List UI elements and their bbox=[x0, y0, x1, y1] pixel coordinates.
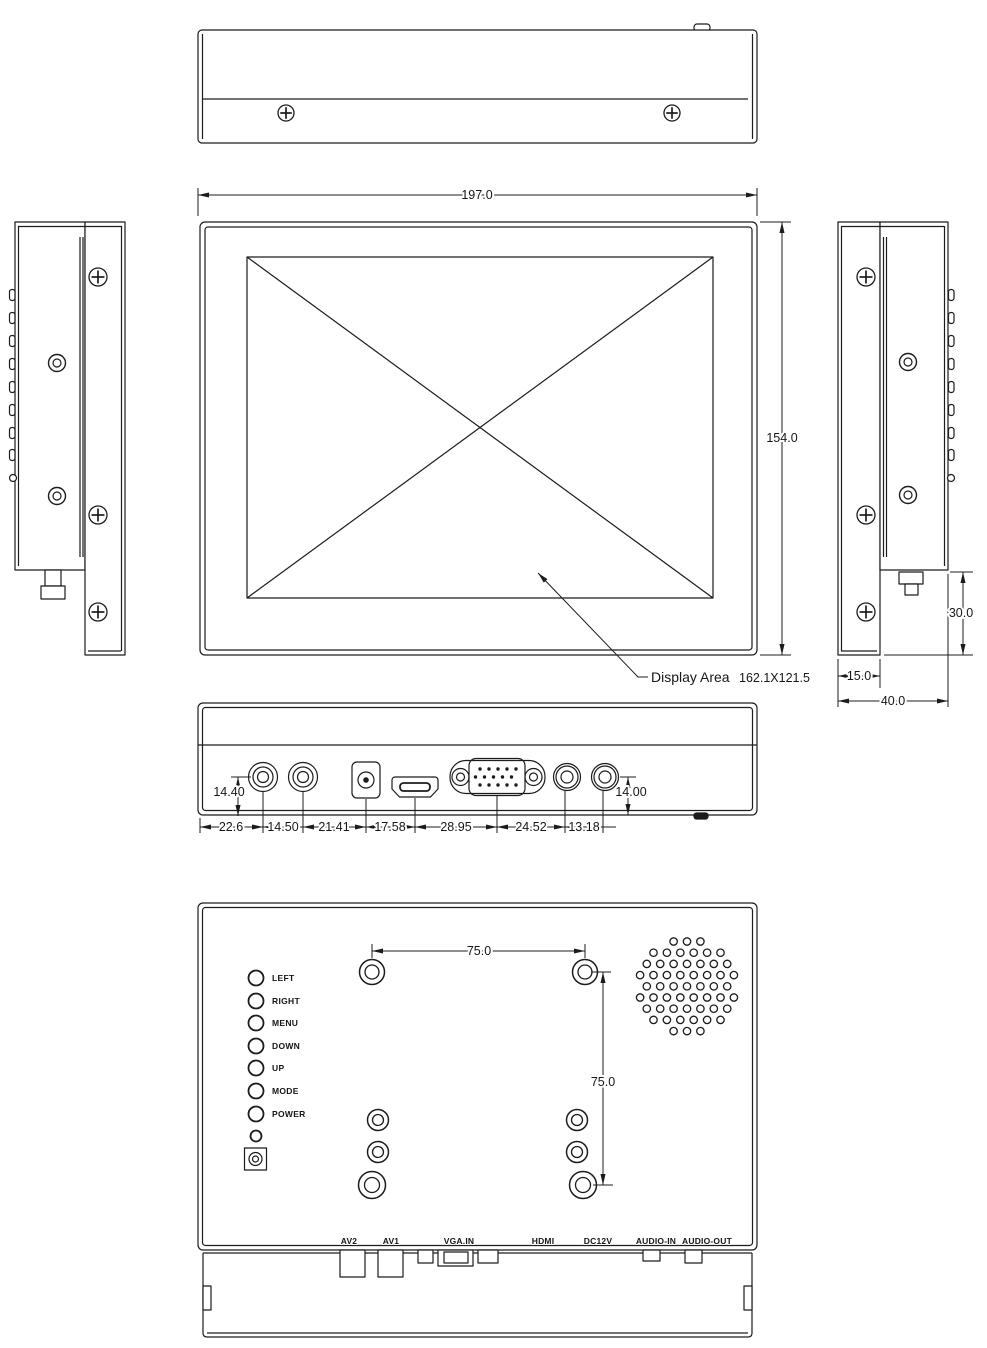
left-side-buttons bbox=[10, 290, 16, 461]
right-side-buttons bbox=[949, 290, 955, 461]
dim-spacing-6: 24.52 bbox=[515, 820, 546, 834]
bottom-flange bbox=[203, 1250, 752, 1337]
button-label-right: RIGHT bbox=[272, 996, 300, 1006]
screw-icon bbox=[664, 105, 680, 121]
port-label-vga-in: VGA.IN bbox=[444, 1236, 474, 1246]
screw-icon bbox=[857, 603, 875, 621]
dim-height-text: 154.0 bbox=[766, 431, 797, 445]
flange-left-tab bbox=[203, 1286, 211, 1310]
right-connector-stub bbox=[899, 572, 923, 584]
port-label-audio-in: AUDIO-IN bbox=[636, 1236, 676, 1246]
left-side-body bbox=[15, 222, 85, 570]
button-label-mode: MODE bbox=[272, 1086, 299, 1096]
dim-vesa-horizontal: 75.0 bbox=[467, 944, 491, 958]
left-side-view bbox=[10, 222, 126, 655]
dim-bezel-depth: 15.0 bbox=[847, 669, 871, 683]
screw-icon bbox=[89, 268, 107, 286]
bottom-view: 22.6 14.50 21.41 17.58 28.95 24.52 13.18… bbox=[198, 703, 757, 834]
audio-out-connector-body bbox=[685, 1250, 702, 1263]
display-area-label: Display Area bbox=[651, 669, 730, 685]
front-bezel-outline bbox=[200, 222, 757, 655]
front-view: 197.0 154.0 Display Area 162.1X121.5 bbox=[198, 188, 810, 685]
technical-drawing-page: 197.0 154.0 Display Area 162.1X121.5 bbox=[0, 0, 987, 1348]
right-side-bezel bbox=[838, 222, 880, 655]
dim-vesa-vertical: 75.0 bbox=[591, 1075, 615, 1089]
left-side-bezel bbox=[85, 222, 125, 655]
dim-spacing-5: 28.95 bbox=[440, 820, 471, 834]
av2-connector-body bbox=[340, 1250, 365, 1277]
display-area-size: 162.1X121.5 bbox=[739, 671, 810, 685]
dim-jack-height-left: 14.40 bbox=[213, 785, 244, 799]
screw-icon bbox=[278, 105, 294, 121]
right-side-body bbox=[880, 222, 948, 570]
dim-spacing-1: 22.6 bbox=[219, 820, 243, 834]
dim-mount-height: 30.0 bbox=[949, 606, 973, 620]
button-label-up: UP bbox=[272, 1063, 284, 1073]
screw-icon bbox=[857, 506, 875, 524]
screw-icon bbox=[857, 268, 875, 286]
port-label-av1: AV1 bbox=[383, 1236, 400, 1246]
button-label-menu: MENU bbox=[272, 1018, 298, 1028]
right-side-view: 30.0 15.0 40.0 bbox=[838, 222, 973, 708]
dim-total-depth: 40.0 bbox=[881, 694, 905, 708]
screw-icon bbox=[89, 603, 107, 621]
left-connector-stub bbox=[45, 570, 61, 586]
right-side-bump bbox=[948, 475, 955, 482]
button-label-down: DOWN bbox=[272, 1041, 300, 1051]
dim-width-text: 197.0 bbox=[461, 188, 492, 202]
av1-connector-body bbox=[378, 1250, 403, 1277]
button-label-left: LEFT bbox=[272, 973, 295, 983]
button-label-power: POWER bbox=[272, 1109, 306, 1119]
bottom-tab bbox=[694, 813, 708, 819]
port-label-hdmi: HDMI bbox=[532, 1236, 555, 1246]
flange-right-tab bbox=[744, 1286, 752, 1310]
top-view bbox=[198, 24, 757, 143]
left-side-bump bbox=[10, 475, 17, 482]
top-view-outline bbox=[198, 30, 757, 143]
dim-spacing-4: 17.58 bbox=[374, 820, 405, 834]
dim-jack-height-right: 14.00 bbox=[615, 785, 646, 799]
screw-icon bbox=[89, 506, 107, 524]
back-view: 75.0 75.0 LEFT RIGHT MENU DOWN UP MODE P… bbox=[198, 903, 757, 1337]
dim-spacing-7: 13.18 bbox=[568, 820, 599, 834]
port-label-audio-out: AUDIO-OUT bbox=[682, 1236, 733, 1246]
port-label-av2: AV2 bbox=[341, 1236, 358, 1246]
audio-in-connector-body bbox=[643, 1250, 660, 1261]
port-label-dc12v: DC12V bbox=[584, 1236, 613, 1246]
dim-spacing-3: 21.41 bbox=[318, 820, 349, 834]
dim-spacing-2: 14.50 bbox=[267, 820, 298, 834]
monitor-dimension-drawing: 197.0 154.0 Display Area 162.1X121.5 bbox=[0, 0, 987, 1348]
